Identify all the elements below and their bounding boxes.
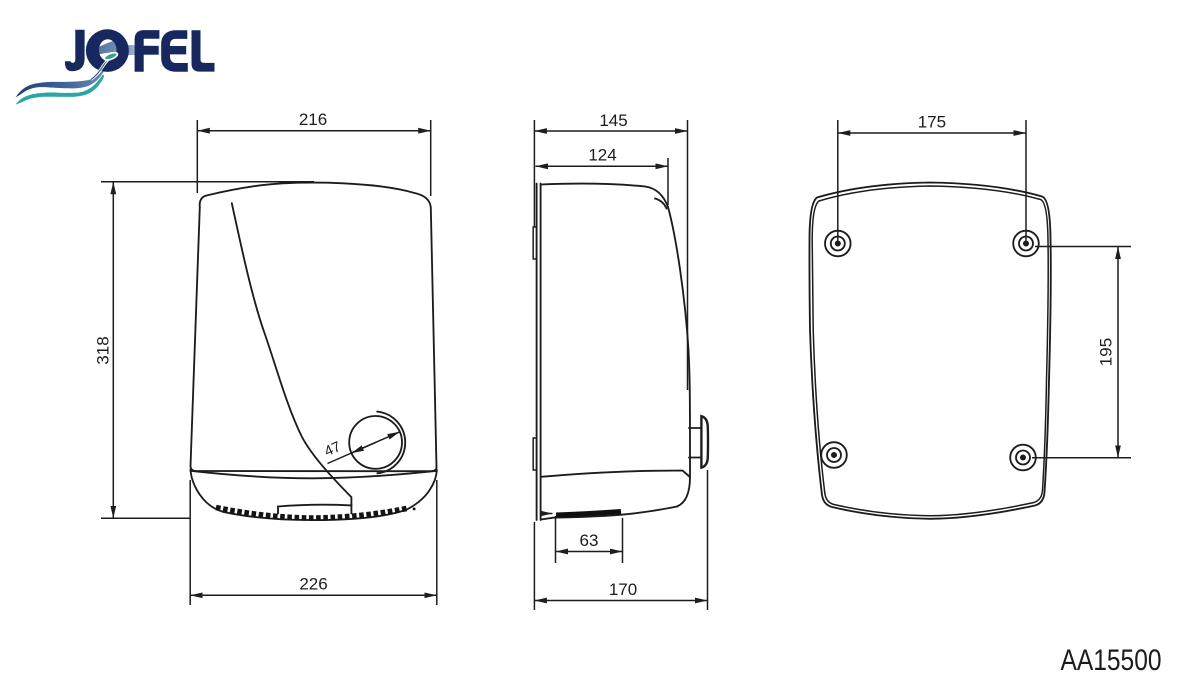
svg-text:124: 124 bbox=[588, 146, 616, 165]
svg-text:170: 170 bbox=[609, 580, 637, 599]
svg-text:226: 226 bbox=[299, 575, 327, 594]
svg-text:AA15500: AA15500 bbox=[1061, 644, 1162, 677]
svg-text:195: 195 bbox=[1097, 338, 1116, 366]
svg-text:63: 63 bbox=[580, 531, 599, 550]
svg-text:145: 145 bbox=[599, 111, 627, 130]
svg-text:47: 47 bbox=[322, 439, 343, 460]
svg-text:216: 216 bbox=[299, 110, 327, 129]
svg-text:175: 175 bbox=[918, 113, 946, 132]
svg-text:318: 318 bbox=[94, 336, 113, 364]
